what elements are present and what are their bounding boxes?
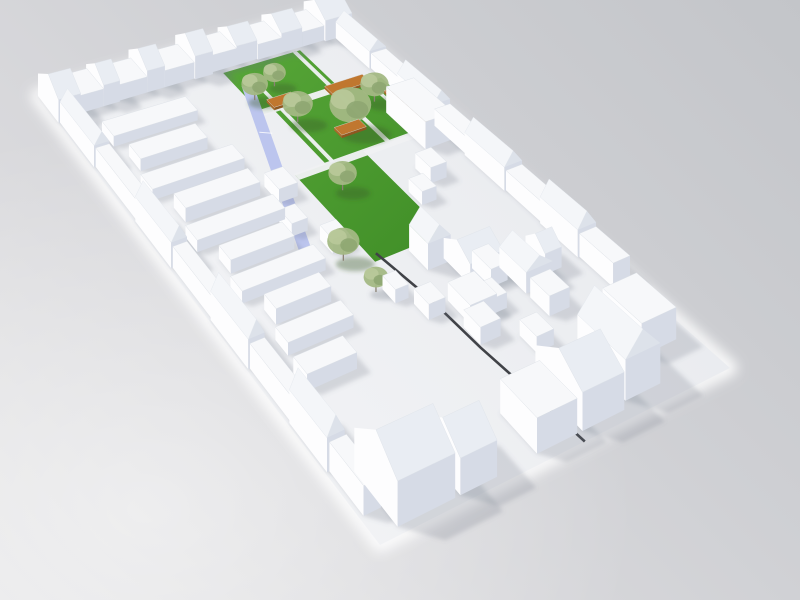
architectural-model-render: [0, 0, 800, 600]
site-massing-model-svg: [0, 0, 800, 600]
